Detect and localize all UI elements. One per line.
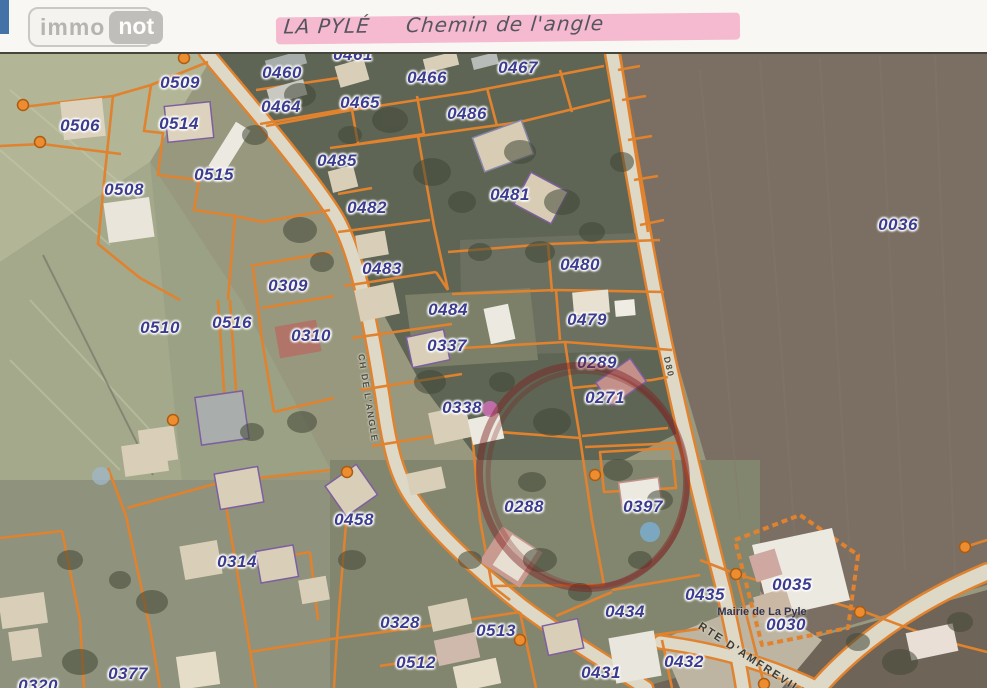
scanned-cadastral-page: 0461050904600464050605140465046604670486… — [0, 0, 987, 688]
road-label: CH DE L'ANGLE — [356, 353, 380, 443]
blue-corner-mark — [0, 0, 9, 34]
road-label: D80 — [662, 356, 676, 379]
parcel-label-0309: 0309 — [268, 276, 308, 296]
parcel-label-0314: 0314 — [217, 552, 257, 572]
parcel-label-0337: 0337 — [427, 336, 467, 356]
parcel-label-0320: 0320 — [18, 676, 58, 688]
parcel-label-0514: 0514 — [159, 114, 199, 134]
parcel-label-0466: 0466 — [407, 68, 447, 88]
parcel-label-0464: 0464 — [261, 97, 301, 117]
parcel-label-0479: 0479 — [567, 310, 607, 330]
parcel-label-0377: 0377 — [108, 664, 148, 684]
parcel-label-0481: 0481 — [490, 185, 530, 205]
parcel-label-0483: 0483 — [362, 259, 402, 279]
parcel-label-0515: 0515 — [194, 165, 234, 185]
parcel-label-0465: 0465 — [340, 93, 380, 113]
scan-header-band: immo not LA PYLÉ Chemin de l'angle — [0, 0, 987, 54]
parcel-label-0271: 0271 — [585, 388, 625, 408]
parcel-label-0516: 0516 — [212, 313, 252, 333]
parcel-label-0338: 0338 — [442, 398, 482, 418]
parcel-label-0328: 0328 — [380, 613, 420, 633]
logo-text-immo: immo — [30, 14, 105, 41]
parcel-label-0397: 0397 — [623, 497, 663, 517]
parcel-label-0513: 0513 — [476, 621, 516, 641]
parcel-label-0485: 0485 — [317, 151, 357, 171]
parcel-label-0482: 0482 — [347, 198, 387, 218]
parcel-label-0434: 0434 — [605, 602, 645, 622]
poi-label: Mairie de La Pyle — [717, 606, 806, 618]
parcel-label-0484: 0484 — [428, 300, 468, 320]
handwritten-street: Chemin de l'angle — [405, 11, 605, 37]
parcel-label-0512: 0512 — [396, 653, 436, 673]
parcel-label-0435: 0435 — [685, 585, 725, 605]
parcel-label-0486: 0486 — [447, 104, 487, 124]
parcel-label-0432: 0432 — [664, 652, 704, 672]
parcel-label-0510: 0510 — [140, 318, 180, 338]
immonot-logo: immo not — [28, 7, 154, 47]
parcel-label-0480: 0480 — [560, 255, 600, 275]
map-label-layer: 0461050904600464050605140465046604670486… — [0, 0, 987, 688]
parcel-label-0035: 0035 — [772, 575, 812, 595]
parcel-label-0508: 0508 — [104, 180, 144, 200]
parcel-label-0467: 0467 — [498, 58, 538, 78]
parcel-label-0310: 0310 — [291, 326, 331, 346]
parcel-label-0289: 0289 — [577, 353, 617, 373]
logo-text-not: not — [109, 11, 163, 44]
parcel-label-0458: 0458 — [334, 510, 374, 530]
parcel-label-0509: 0509 — [160, 73, 200, 93]
parcel-label-0431: 0431 — [581, 663, 621, 683]
handwritten-title: LA PYLÉ Chemin de l'angle — [283, 10, 756, 39]
parcel-label-0030: 0030 — [766, 615, 806, 635]
parcel-label-0460: 0460 — [262, 63, 302, 83]
parcel-label-0288: 0288 — [504, 497, 544, 517]
parcel-label-0506: 0506 — [60, 116, 100, 136]
parcel-label-0036: 0036 — [878, 215, 918, 235]
handwritten-commune: LA PYLÉ — [283, 14, 372, 39]
